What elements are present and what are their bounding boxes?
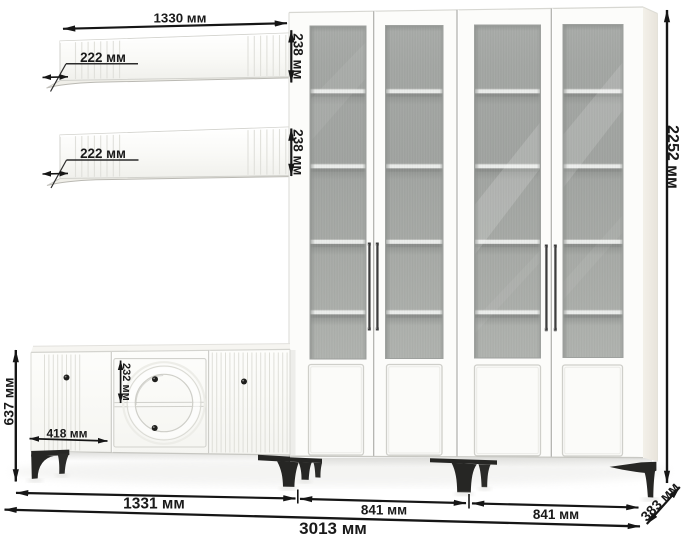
svg-text:637 мм: 637 мм [1, 378, 17, 426]
svg-text:222 мм: 222 мм [80, 146, 126, 161]
svg-text:841 мм: 841 мм [361, 502, 407, 517]
svg-text:232 мм: 232 мм [120, 363, 132, 401]
svg-text:2252 мм: 2252 мм [664, 125, 681, 189]
svg-text:238 мм: 238 мм [290, 33, 305, 79]
svg-text:3013 мм: 3013 мм [299, 519, 367, 536]
svg-text:222 мм: 222 мм [80, 50, 126, 65]
svg-text:841 мм: 841 мм [533, 507, 579, 522]
svg-text:1331 мм: 1331 мм [123, 496, 185, 513]
svg-text:238 мм: 238 мм [290, 129, 305, 175]
svg-text:1330 мм: 1330 мм [154, 11, 207, 26]
